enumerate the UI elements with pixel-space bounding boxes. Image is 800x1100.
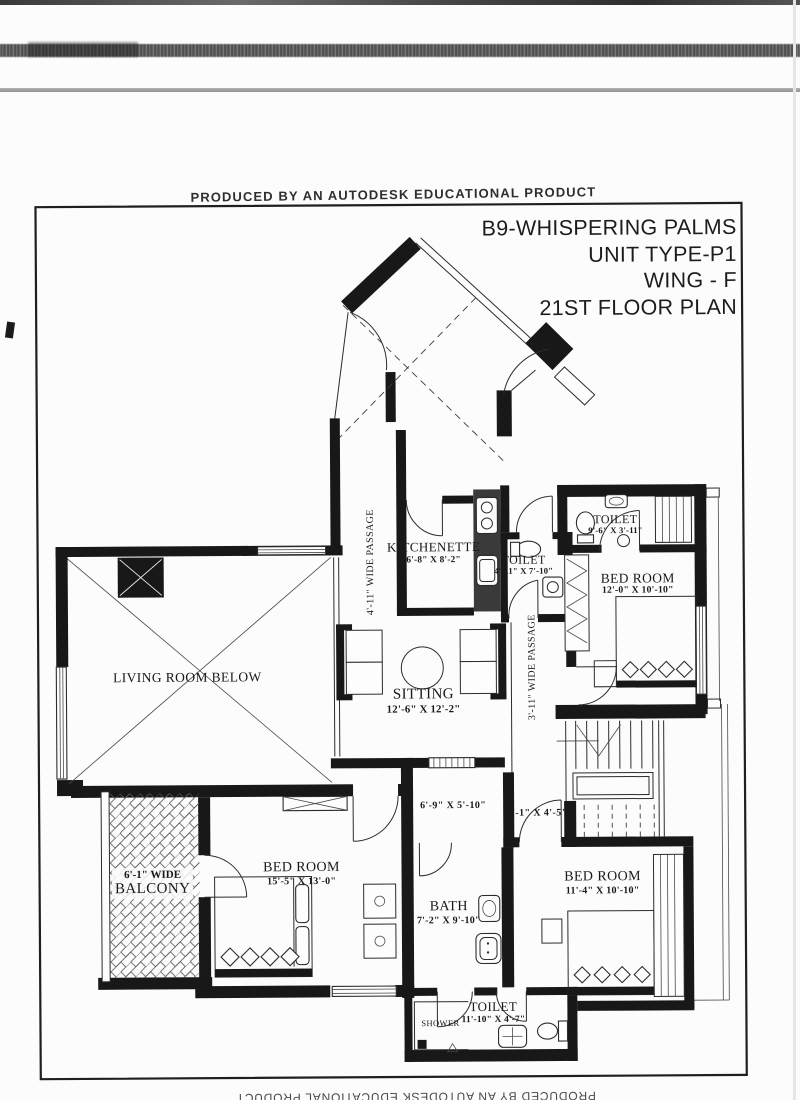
label-living-room-below: LIVING ROOM BELOW [113, 669, 262, 685]
label-bedroom-left: BED ROOM 15'-5" X 13'-0" [263, 860, 340, 887]
sofa-left [336, 624, 382, 700]
label-sitting: SITTING 12'-6" X 12'-2" [387, 686, 461, 715]
label-toilet-common: TOILET 11'-10" X 4'-7" [461, 1000, 525, 1025]
round-table [401, 647, 443, 689]
wardrobe [653, 854, 684, 996]
label-bath: BATH 7'-2" X 9'-10" [417, 899, 481, 926]
label-toilet-attached: TOILET 4'-11" X 7'-10" [494, 554, 553, 577]
label-bedroom-right: BED ROOM 11'-4" X 10'-10" [564, 869, 641, 896]
window-box [283, 796, 347, 810]
floor-drain [617, 535, 629, 547]
foyer-grill-window [429, 758, 475, 768]
autodesk-watermark-bottom: PRODUCED BY AN AUTODESK EDUCATIONAL PROD… [381, 1089, 596, 1100]
label-kitchenette: KITCHENETTE 6'-8" X 8'-2" [387, 540, 480, 566]
label-shower: SHOWER [421, 1019, 459, 1029]
drawing-sheet: PRODUCED BY AN AUTODESK EDUCATIONAL PROD… [0, 0, 800, 1100]
washbasin-fixture [543, 577, 563, 597]
pillow [296, 885, 309, 923]
label-passage-upper: 4'-11" WIDE PASSAGE [365, 509, 377, 615]
side-table [542, 919, 562, 943]
bedroom-master-furniture [576, 596, 697, 705]
pillow [296, 927, 309, 965]
toilet-shelf [655, 496, 691, 542]
duct-shaft [565, 555, 590, 651]
washbasin-fixture [479, 895, 500, 921]
side-table [364, 884, 396, 918]
label-passage-lower: 3'-11" WIDE PASSAGE [526, 614, 538, 720]
title-line-unit: UNIT TYPE-P1 [482, 241, 737, 269]
label-foyer-dims: 6'-9" X 5'-10" [420, 800, 486, 812]
label-toilet-master: TOILET 9'-6" X 3'-11" [588, 513, 643, 536]
label-bedroom-master: BED ROOM 12'-0" X 10'-10" [601, 570, 675, 596]
title-line-floor: 21ST FLOOR PLAN [482, 294, 737, 322]
wc-fixture [537, 1023, 557, 1039]
stove-fixture [476, 497, 497, 533]
side-table [364, 924, 396, 958]
scanned-floor-plan-page: PRODUCED BY AN AUTODESK EDUCATIONAL PROD… [0, 0, 800, 1100]
washbasin-fixture [605, 495, 627, 508]
title-line-project: B9-WHISPERING PALMS [482, 214, 737, 242]
shower-head-icon [418, 1040, 427, 1049]
label-balcony: 6'-1" WIDE BALCONY [112, 868, 194, 900]
title-block: B9-WHISPERING PALMS UNIT TYPE-P1 WING - … [482, 214, 738, 322]
label-lobby-dims: 5'-1" X 4'-5" [507, 807, 568, 819]
service-shaft [118, 557, 164, 597]
title-line-wing: WING - F [482, 267, 737, 295]
sofa-right [460, 623, 506, 699]
